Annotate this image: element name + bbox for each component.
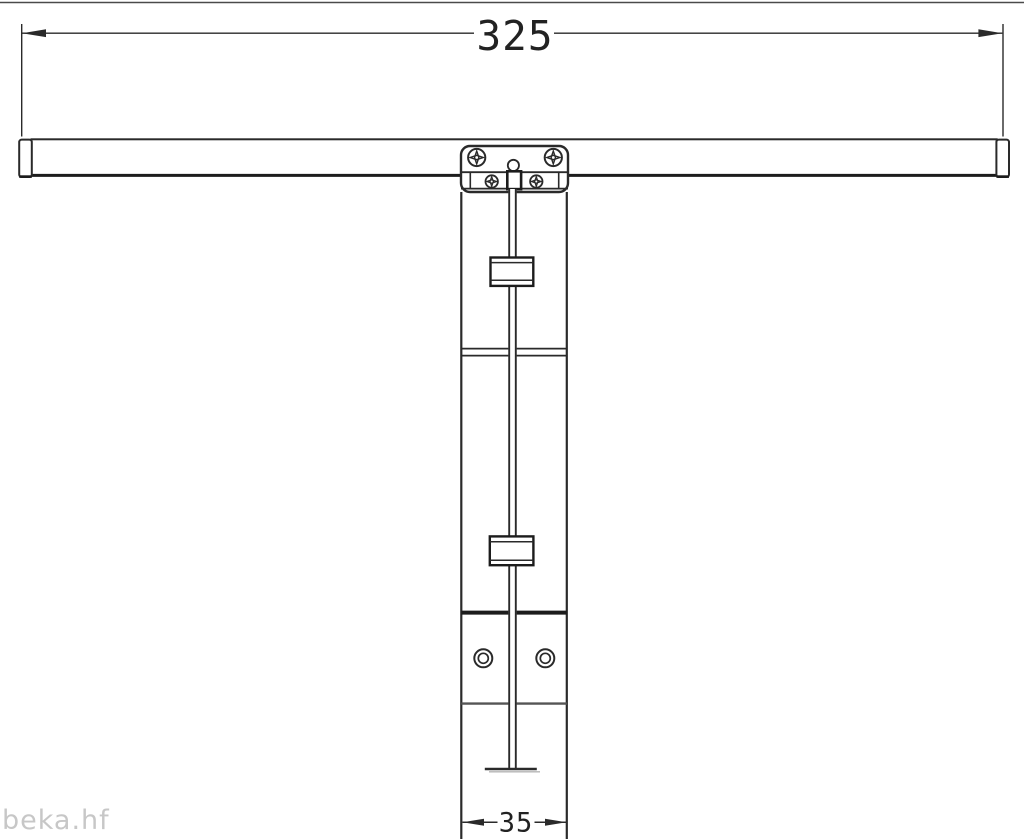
bracket-center-hole-icon: [508, 160, 519, 171]
base-width-value: 35: [499, 808, 534, 839]
base-arrowhead-right-icon: [545, 819, 567, 826]
t-antenna-drawing: 325: [0, 0, 1024, 839]
watermark-text: beka.hf: [2, 805, 110, 836]
clamp-block-upper: [491, 258, 534, 286]
rod-nut-block: [507, 171, 521, 189]
dimension-base-width: 35: [463, 808, 567, 839]
technical-drawing-canvas: 325: [0, 0, 1024, 839]
rod-foot: [485, 769, 540, 772]
arrowhead-right-icon: [978, 29, 1002, 37]
base-arrowhead-left-icon: [463, 819, 485, 826]
mounting-bracket: [461, 146, 568, 192]
crossbar-end-cap-left: [19, 140, 32, 177]
overall-width-value: 325: [476, 12, 553, 60]
mounting-hole-left-inner-icon: [478, 653, 488, 663]
dimension-overall-width: 325: [22, 12, 1003, 137]
crossbar-end-cap-right: [996, 140, 1009, 177]
mounting-hole-right-inner-icon: [540, 653, 550, 663]
arrowhead-left-icon: [22, 29, 46, 37]
